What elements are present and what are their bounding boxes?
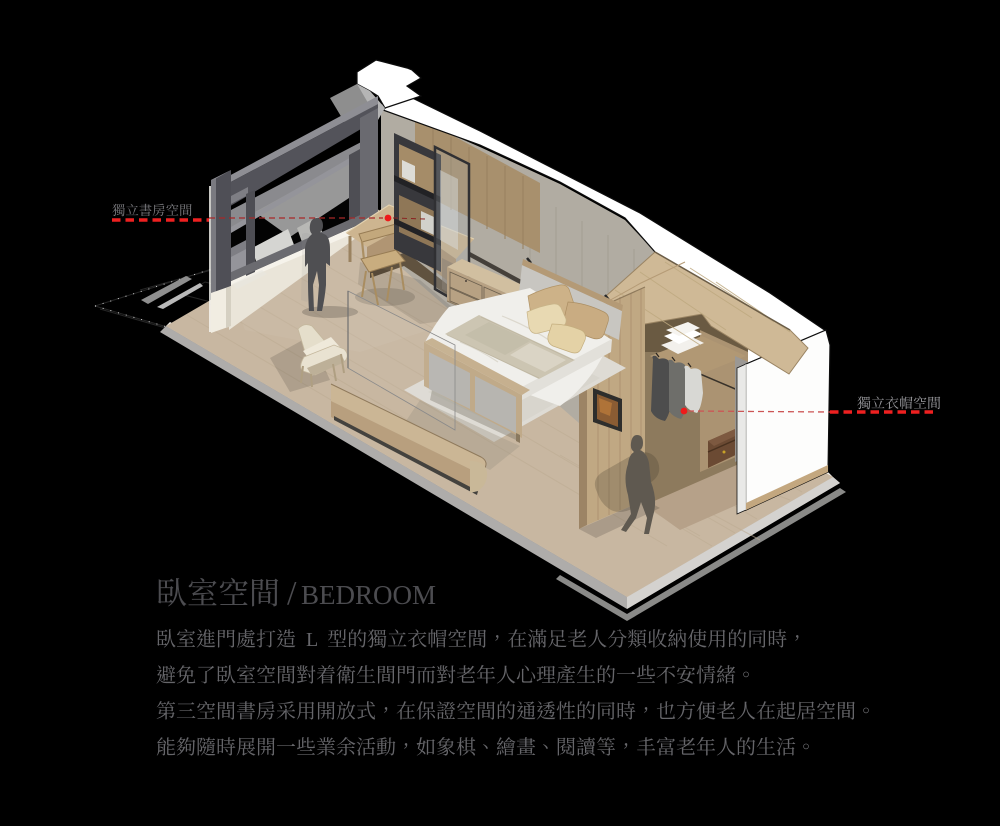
svg-text:/: / — [287, 575, 297, 612]
svg-text:L: L — [306, 629, 318, 651]
svg-text:BEDROOM: BEDROOM — [301, 580, 436, 610]
